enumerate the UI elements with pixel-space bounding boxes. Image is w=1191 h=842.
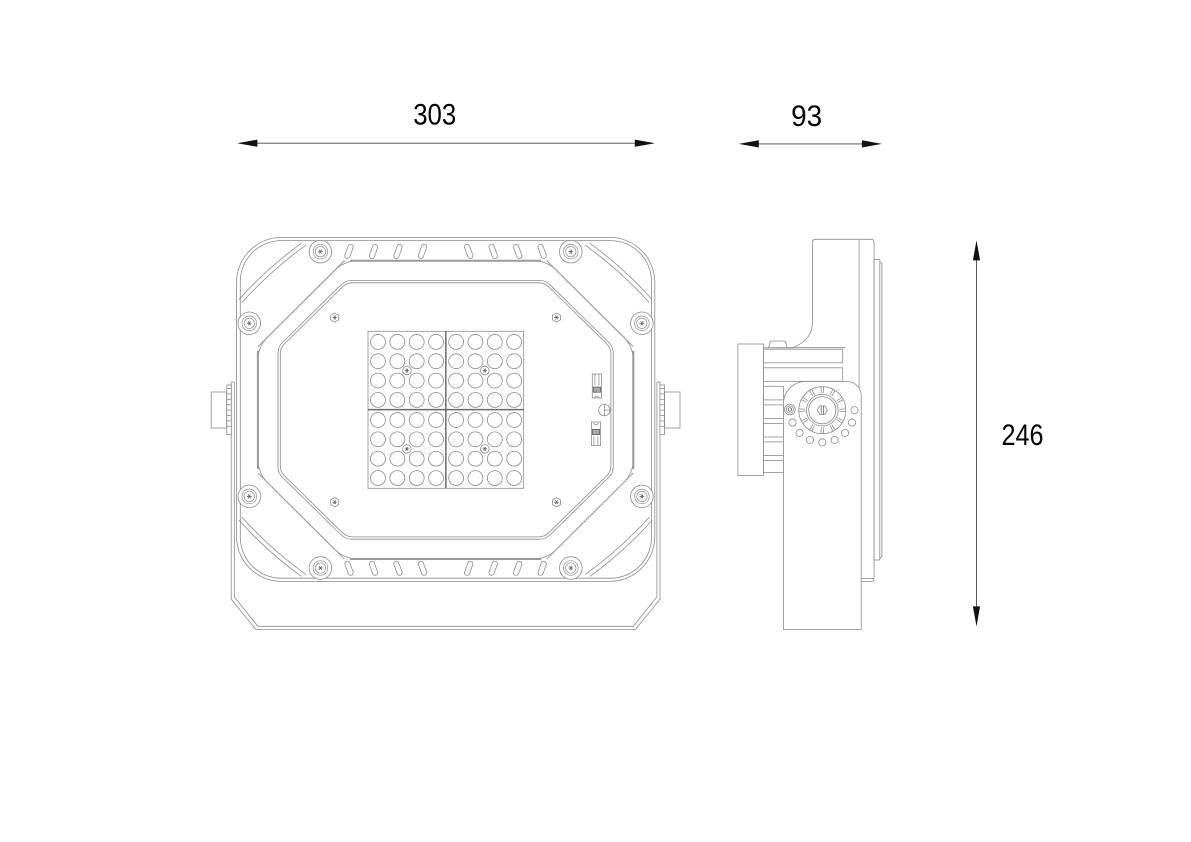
svg-text:93: 93: [791, 100, 822, 133]
svg-text:246: 246: [1002, 419, 1044, 452]
svg-text:303: 303: [413, 99, 456, 132]
